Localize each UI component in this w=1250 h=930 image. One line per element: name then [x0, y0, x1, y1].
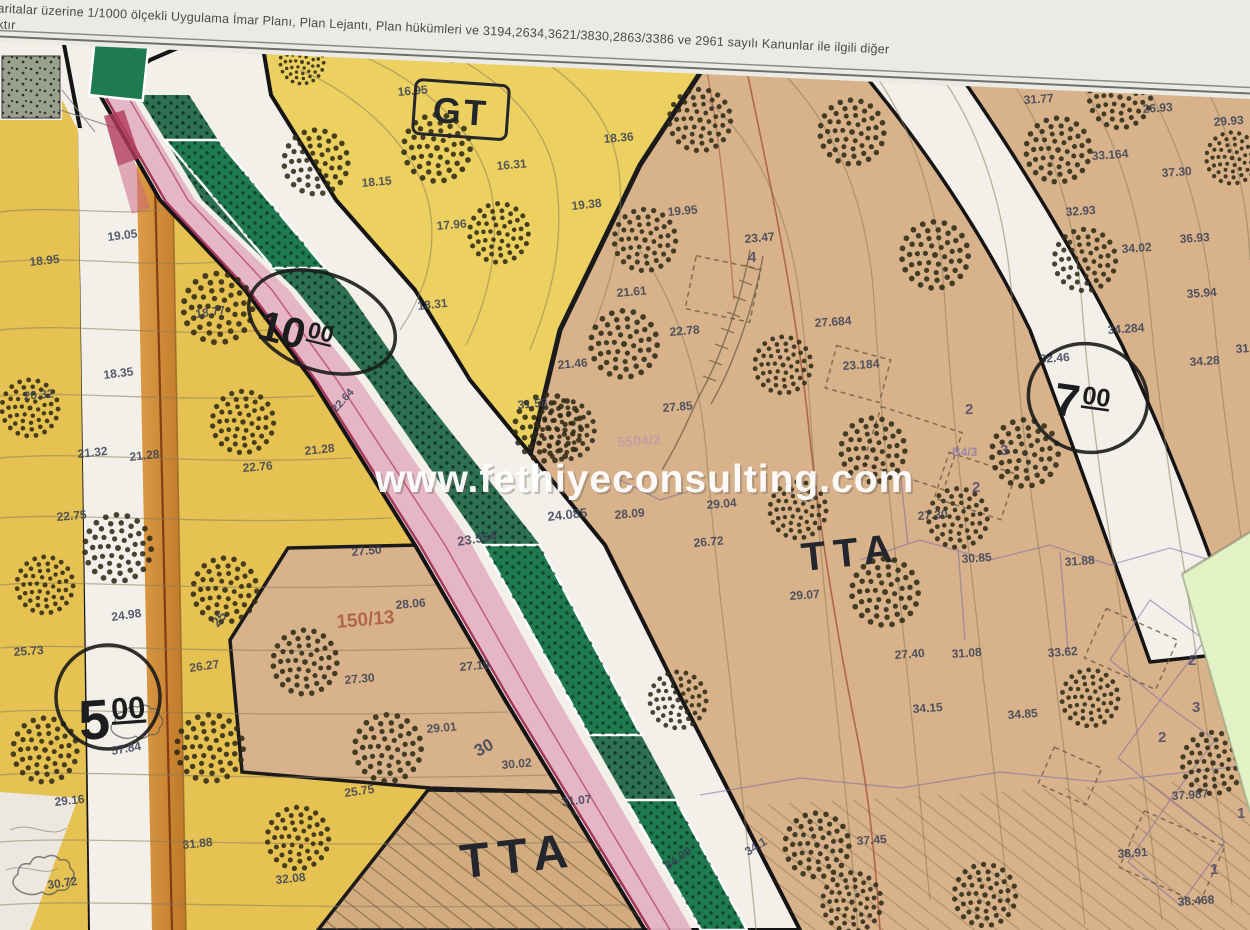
elevation-label: 31.08	[951, 645, 982, 661]
elevation-label: 36.93	[1179, 230, 1210, 246]
plan-map-svg: 19.0518.9518.7718.3520.3221.3221.2822.75…	[0, 0, 1250, 930]
elevation-label: 31.58	[517, 395, 548, 412]
elevation-label: 20.32	[23, 386, 54, 403]
elevation-label: 38.468	[1177, 892, 1215, 909]
lot-number: 1	[1210, 861, 1218, 878]
elevation-label: 37.45	[856, 832, 887, 848]
elevation-label: 29.07	[789, 587, 820, 603]
parcel-ref: B4/3	[952, 445, 978, 459]
lot-number: 3	[1192, 699, 1200, 716]
lot-number: 4	[748, 249, 757, 266]
elevation-label: 16.95	[397, 82, 428, 99]
elevation-label: 28.06	[395, 595, 426, 612]
elevation-label: 37.30	[1161, 164, 1192, 180]
elevation-label: 31.58	[1235, 340, 1250, 356]
elevation-label: 18.15	[361, 173, 392, 190]
header-line2: olacaktır	[0, 16, 16, 32]
elevation-label: 33.62	[1047, 644, 1078, 660]
elevation-label: 26.72	[693, 533, 724, 550]
elevation-label: 34.28	[1189, 353, 1220, 369]
elevation-label: 33.164	[1091, 146, 1129, 163]
elevation-label: 22.78	[669, 322, 700, 339]
elevation-label: 19.95	[667, 202, 698, 219]
watermark-text: www.fethiyeconsulting.com	[374, 458, 914, 501]
elevation-label: 35.94	[1186, 285, 1217, 301]
elevation-label: 27.40	[894, 646, 925, 662]
elevation-label: 38.91	[1117, 845, 1148, 861]
elevation-label: 29.93	[1213, 113, 1244, 129]
elevation-label: 34.284	[1107, 320, 1145, 337]
elevation-label: 25.73	[13, 643, 44, 659]
elevation-label: 29.01	[426, 719, 457, 736]
watermark: www.fethiyeconsulting.com www.fethiyecon…	[374, 458, 916, 503]
elevation-label: 30.02	[501, 755, 532, 772]
elevation-label: 26.93	[1142, 100, 1173, 116]
elevation-label: 21.61	[616, 283, 647, 300]
stipple-corner	[2, 56, 60, 118]
plan-photo: 19.0518.9518.7718.3520.3221.3221.2822.75…	[0, 0, 1250, 930]
elevation-label: 21.46	[557, 355, 588, 372]
elevation-label: 27.19	[459, 657, 490, 674]
elevation-label: 28.09	[614, 505, 645, 522]
elevation-label: 23.47	[744, 229, 775, 246]
lot-number: 2	[1188, 652, 1196, 669]
lot-number: 2	[1158, 729, 1166, 746]
elevation-label: 22.75	[56, 507, 87, 524]
elevation-label: 18.36	[603, 129, 634, 146]
elevation-label: 31.88	[1064, 553, 1095, 569]
parcel-ref: 5504/2	[617, 431, 661, 450]
elevation-label: 34.15	[912, 700, 943, 716]
elevation-label: 23.184	[842, 356, 880, 373]
svg-text:GT: GT	[432, 89, 491, 134]
elevation-label: 31.77	[1023, 91, 1054, 107]
elevation-label: 27.30	[344, 670, 375, 687]
elevation-label: 17.96	[436, 216, 467, 233]
elevation-label: 32.93	[1065, 203, 1096, 219]
elevation-label: 37.987	[1171, 786, 1209, 803]
elevation-label: 27.50	[351, 542, 382, 559]
lot-number: 2	[972, 479, 980, 496]
elevation-label: 30.85	[961, 550, 992, 566]
lot-number: 1	[1237, 805, 1245, 822]
elevation-label: 22.76	[242, 458, 273, 475]
elevation-label: 27.30	[917, 507, 948, 523]
elevation-label: 16.31	[496, 156, 527, 173]
lot-number: 3	[1000, 442, 1008, 459]
elevation-label: 34.02	[1121, 240, 1152, 256]
elevation-label: 27.684	[814, 313, 852, 330]
lot-number: 2	[965, 401, 973, 418]
elevation-label: 27.85	[662, 398, 693, 415]
elevation-label: 34.85	[1007, 706, 1038, 722]
